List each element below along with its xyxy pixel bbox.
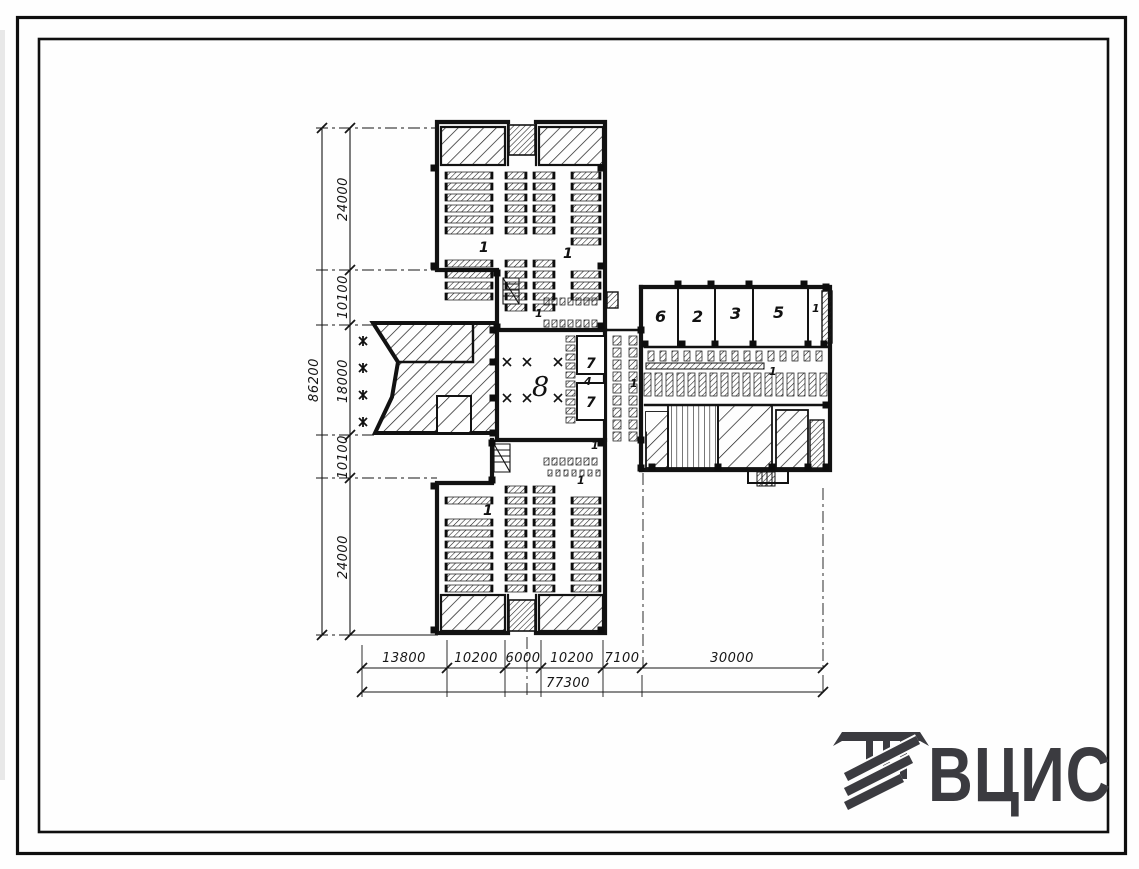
axis-column-mark <box>359 417 367 427</box>
shelf-cap <box>524 585 527 592</box>
shelf-cap <box>598 508 601 515</box>
room-number-label: 3 <box>730 304 741 323</box>
shelf-cap <box>598 238 601 245</box>
shelf-cap <box>505 260 508 267</box>
stack-unit <box>568 458 573 465</box>
shelf-unit <box>505 293 527 300</box>
shelf-cap <box>445 530 448 537</box>
shelf-cap <box>524 183 527 190</box>
logo-cornice-flare <box>833 732 842 746</box>
stack-unit <box>655 373 662 396</box>
shelf-cap <box>524 486 527 493</box>
stack-unit <box>584 298 589 305</box>
shelf-unit <box>445 282 493 289</box>
dim-label: 24000 <box>336 177 351 221</box>
dim-label-overall: 77300 <box>546 676 590 691</box>
dim-label: 10200 <box>454 651 498 666</box>
shelf-unit <box>505 530 527 537</box>
shelf-cap <box>598 227 601 234</box>
dim-label: 24000 <box>336 535 351 579</box>
shelf-cap <box>505 563 508 570</box>
column-mark <box>503 394 511 402</box>
shelf-unit <box>505 227 527 234</box>
shelf-cap <box>505 172 508 179</box>
shelf-cap <box>571 563 574 570</box>
shelf-cap <box>533 183 536 190</box>
shelf-cap <box>571 574 574 581</box>
pilaster <box>805 341 812 348</box>
pilaster <box>489 440 496 447</box>
shelf-cap <box>598 205 601 212</box>
stack-unit <box>629 336 637 345</box>
stack-unit <box>776 373 783 396</box>
room-number-label: 4 <box>583 375 592 388</box>
shelf-cap <box>524 260 527 267</box>
dim-label: 10200 <box>550 651 594 666</box>
stack-unit <box>596 470 600 476</box>
shelf-cap <box>524 552 527 559</box>
stack-unit <box>820 373 827 396</box>
stack-unit <box>566 363 575 369</box>
column-mark <box>523 358 531 366</box>
shelf-unit <box>571 563 601 570</box>
shelf-unit <box>445 172 493 179</box>
stack-unit <box>566 336 575 342</box>
column-mark <box>503 358 511 366</box>
stack-unit <box>613 432 621 441</box>
shelf-cap <box>505 519 508 526</box>
shelf-unit <box>505 574 527 581</box>
room-number-label: 1 <box>563 246 573 262</box>
shelf-cap <box>490 585 493 592</box>
shelf-cap <box>533 205 536 212</box>
stack-unit <box>576 320 581 327</box>
shelf-unit <box>505 585 527 592</box>
shelf-unit <box>533 227 555 234</box>
stack-unit <box>629 360 637 369</box>
shelf-unit <box>533 282 555 289</box>
pilaster <box>431 483 438 490</box>
stack-unit <box>613 360 621 369</box>
shelf-cap <box>490 227 493 234</box>
shelf-cap <box>524 541 527 548</box>
pilaster <box>431 165 438 172</box>
left-wing-room-hatch <box>437 396 471 433</box>
shelf-cap <box>533 486 536 493</box>
pilaster <box>750 341 757 348</box>
shelf-cap <box>490 194 493 201</box>
stack-unit <box>629 420 637 429</box>
shelf-unit <box>533 552 555 559</box>
shelf-cap <box>505 183 508 190</box>
shelf-cap <box>533 530 536 537</box>
stack-unit <box>648 351 654 361</box>
shelf-cap <box>552 486 555 493</box>
shelf-unit <box>505 304 527 311</box>
shelf-cap <box>598 172 601 179</box>
hatched-room <box>441 127 505 165</box>
pilaster <box>823 402 830 409</box>
stack-unit <box>809 373 816 396</box>
shelf-cap <box>524 574 527 581</box>
shelf-cap <box>552 541 555 548</box>
shelf-unit <box>445 227 493 234</box>
shelf-unit <box>445 530 493 537</box>
shelf-cap <box>552 508 555 515</box>
shelf-cap <box>598 530 601 537</box>
shelf-unit <box>505 508 527 515</box>
shelf-cap <box>505 271 508 278</box>
stack-unit <box>566 408 575 414</box>
shelf-unit <box>505 172 527 179</box>
shelf-cap <box>533 563 536 570</box>
stack-unit <box>613 336 621 345</box>
shelf-cap <box>533 541 536 548</box>
pilaster <box>494 270 501 277</box>
room-number-label: 1 <box>769 365 777 378</box>
hatched-area <box>776 410 808 468</box>
shelf-unit <box>571 216 601 223</box>
shelf-cap <box>490 293 493 300</box>
stack-unit <box>696 351 702 361</box>
axis-column-mark <box>359 336 367 346</box>
shelf-cap <box>598 282 601 289</box>
shelf-cap <box>505 574 508 581</box>
shelf-cap <box>524 304 527 311</box>
shelf-cap <box>505 227 508 234</box>
shelf-unit <box>533 271 555 278</box>
pilaster <box>649 464 656 471</box>
pilaster <box>431 263 438 270</box>
shelf-cap <box>552 563 555 570</box>
shelf-cap <box>505 293 508 300</box>
pilaster <box>489 477 496 484</box>
shelf-cap <box>571 282 574 289</box>
stair-strip <box>810 420 824 468</box>
shelf-unit <box>571 541 601 548</box>
stack-unit <box>584 320 589 327</box>
shelf-unit <box>533 486 555 493</box>
shelf-cap <box>552 552 555 559</box>
shelf-unit <box>445 205 493 212</box>
shelf-cap <box>524 530 527 537</box>
shelf-unit <box>533 497 555 504</box>
shelf-cap <box>505 486 508 493</box>
pilaster <box>821 341 828 348</box>
room-number-label: 1 <box>479 240 489 256</box>
shelf-cap <box>505 541 508 548</box>
stack-unit <box>566 381 575 387</box>
staircase <box>494 444 510 472</box>
scan-edge-artifact <box>0 30 5 780</box>
shelf-cap <box>490 216 493 223</box>
stack-unit <box>566 417 575 423</box>
shelf-cap <box>445 183 448 190</box>
shelf-cap <box>490 183 493 190</box>
stack-unit <box>566 399 575 405</box>
room-number-label: 1 <box>577 474 585 487</box>
shelf-unit <box>533 194 555 201</box>
stack-unit <box>613 384 621 393</box>
dim-label-overall: 86200 <box>307 358 322 402</box>
shelf-cap <box>571 216 574 223</box>
stack-unit <box>768 351 774 361</box>
shelf-cap <box>524 282 527 289</box>
stair-shaft <box>509 125 535 155</box>
column-mark <box>554 358 562 366</box>
shelf-cap <box>490 563 493 570</box>
shelf-cap <box>552 172 555 179</box>
shelf-cap <box>505 508 508 515</box>
shelf-unit <box>533 585 555 592</box>
shelf-cap <box>445 519 448 526</box>
shelf-unit <box>505 563 527 570</box>
stack-unit <box>560 298 565 305</box>
stack-unit <box>672 351 678 361</box>
shelf-unit <box>571 183 601 190</box>
stack-unit <box>732 373 739 396</box>
shelf-unit <box>571 238 601 245</box>
shelf-cap <box>598 541 601 548</box>
shelf-unit <box>533 205 555 212</box>
shelf-unit <box>571 194 601 201</box>
stack-unit <box>677 373 684 396</box>
room-number-label: 2 <box>692 307 703 326</box>
stack-unit <box>780 351 786 361</box>
stack-unit <box>804 351 810 361</box>
stack-unit <box>629 408 637 417</box>
pilaster <box>823 284 830 291</box>
shelf-cap <box>598 574 601 581</box>
shelf-unit <box>571 271 601 278</box>
shelf-cap <box>524 271 527 278</box>
stack-unit <box>660 351 666 361</box>
shelf-cap <box>445 205 448 212</box>
shelf-cap <box>524 205 527 212</box>
stack-unit <box>572 470 576 476</box>
stack-unit <box>568 320 573 327</box>
shelf-unit <box>445 293 493 300</box>
shelf-cap <box>445 563 448 570</box>
shelf-cap <box>490 260 493 267</box>
pilaster <box>638 437 645 444</box>
room-number-label: 1 <box>535 307 543 320</box>
shelf-cap <box>490 574 493 581</box>
shelf-cap <box>598 552 601 559</box>
stack-unit <box>756 351 762 361</box>
shelf-cap <box>571 205 574 212</box>
shelf-cap <box>571 508 574 515</box>
stack-unit <box>708 351 714 361</box>
pilaster <box>769 464 776 471</box>
shelf-cap <box>598 563 601 570</box>
shelf-cap <box>598 585 601 592</box>
shelf-unit <box>445 260 493 267</box>
stack-unit <box>560 458 565 465</box>
room-number-label: 5 <box>773 303 784 322</box>
pilaster <box>598 627 605 634</box>
shelf-unit <box>505 260 527 267</box>
stack-unit <box>629 348 637 357</box>
shelf-cap <box>571 530 574 537</box>
shelf-cap <box>445 282 448 289</box>
shelf-unit <box>445 574 493 581</box>
shelf-unit <box>571 530 601 537</box>
shelf-cap <box>552 519 555 526</box>
shelf-cap <box>490 172 493 179</box>
stack-unit <box>629 396 637 405</box>
pilaster <box>715 464 722 471</box>
pilaster <box>598 165 605 172</box>
shelf-unit <box>571 519 601 526</box>
shelf-unit <box>533 508 555 515</box>
shelf-cap <box>533 519 536 526</box>
stack-unit <box>710 373 717 396</box>
shelf-cap <box>571 227 574 234</box>
ramp-area <box>668 405 718 468</box>
room-number-label: 7 <box>586 395 596 411</box>
dim-label: 30000 <box>710 651 754 666</box>
shelf-unit <box>445 541 493 548</box>
pilaster <box>490 359 497 366</box>
shelf-cap <box>552 530 555 537</box>
shelf-unit <box>505 205 527 212</box>
logo: ВЦИС <box>833 732 1111 818</box>
shelf-cap <box>571 183 574 190</box>
stack-unit <box>566 390 575 396</box>
pilaster <box>490 395 497 402</box>
room-number-label: 1 <box>483 503 493 519</box>
shelf-unit <box>445 183 493 190</box>
shelf-cap <box>445 260 448 267</box>
shelf-cap <box>524 216 527 223</box>
dim-label: 13800 <box>382 651 426 666</box>
shelf-unit <box>505 486 527 493</box>
shelf-cap <box>533 508 536 515</box>
shelf-cap <box>552 194 555 201</box>
shelf-cap <box>445 497 448 504</box>
shelf-cap <box>571 271 574 278</box>
shelf-cap <box>552 497 555 504</box>
shelf-cap <box>445 271 448 278</box>
dim-label: 6000 <box>505 651 540 666</box>
shelf-unit <box>571 282 601 289</box>
shelf-cap <box>445 194 448 201</box>
dim-label: 10100 <box>336 275 351 319</box>
logo-stripes <box>846 740 918 806</box>
shelf-cap <box>445 227 448 234</box>
shelf-cap <box>533 574 536 581</box>
pilaster <box>431 627 438 634</box>
shelf-unit <box>505 194 527 201</box>
shelf-cap <box>571 194 574 201</box>
stack-unit <box>688 373 695 396</box>
shelf-cap <box>505 530 508 537</box>
shelf-cap <box>445 574 448 581</box>
shelf-cap <box>505 194 508 201</box>
logo-wordmark: ВЦИС <box>928 732 1111 818</box>
shelf-cap <box>490 530 493 537</box>
stack-unit <box>544 320 549 327</box>
pilaster <box>746 281 753 288</box>
dim-label: 18000 <box>336 359 351 403</box>
shelf-cap <box>505 216 508 223</box>
shelf-unit <box>505 282 527 289</box>
stack-unit <box>584 458 589 465</box>
pilaster <box>801 281 808 288</box>
room-number-label: 1 <box>630 377 638 390</box>
pilaster <box>638 327 645 334</box>
shelf-cap <box>552 574 555 581</box>
shelf-cap <box>524 497 527 504</box>
shelf-cap <box>490 271 493 278</box>
shelf-unit <box>505 216 527 223</box>
stack-unit <box>576 298 581 305</box>
shelf-cap <box>533 172 536 179</box>
shelf-cap <box>533 282 536 289</box>
pilaster <box>679 341 686 348</box>
shelf-cap <box>490 519 493 526</box>
shelf-cap <box>445 541 448 548</box>
hatched-room <box>441 595 505 631</box>
shelf-cap <box>571 552 574 559</box>
shelf-unit <box>445 271 493 278</box>
shelf-cap <box>533 216 536 223</box>
room-number-label: 1 <box>591 439 599 452</box>
pilaster <box>823 464 830 471</box>
shelf-cap <box>598 293 601 300</box>
shelf-cap <box>533 271 536 278</box>
shelf-unit <box>445 585 493 592</box>
shelf-cap <box>445 585 448 592</box>
stack-unit <box>544 298 549 305</box>
shelf-unit <box>445 194 493 201</box>
shelf-cap <box>598 271 601 278</box>
shelf-cap <box>598 497 601 504</box>
shelf-unit <box>505 541 527 548</box>
shelf-cap <box>445 552 448 559</box>
shelf-cap <box>505 585 508 592</box>
shelf-unit <box>571 172 601 179</box>
shelf-cap <box>524 519 527 526</box>
shelf-cap <box>524 508 527 515</box>
counter-desk <box>646 363 764 369</box>
stack-unit <box>592 298 597 305</box>
stack-unit <box>560 320 565 327</box>
stack-unit <box>629 432 637 441</box>
shelf-cap <box>533 227 536 234</box>
stair-shaft <box>509 600 535 631</box>
stack-unit <box>548 470 552 476</box>
shelf-cap <box>505 497 508 504</box>
shelf-cap <box>571 172 574 179</box>
shelf-cap <box>524 293 527 300</box>
column-mark <box>554 394 562 402</box>
stack-unit <box>552 320 557 327</box>
shelf-unit <box>533 519 555 526</box>
pilaster <box>642 341 649 348</box>
shelf-cap <box>533 497 536 504</box>
shelf-cap <box>571 497 574 504</box>
shelf-cap <box>552 205 555 212</box>
shelf-cap <box>552 183 555 190</box>
pilaster <box>494 324 501 331</box>
stack-unit <box>564 470 568 476</box>
stack-unit <box>699 373 706 396</box>
shelf-cap <box>533 293 536 300</box>
shelf-cap <box>445 216 448 223</box>
shelf-cap <box>490 205 493 212</box>
